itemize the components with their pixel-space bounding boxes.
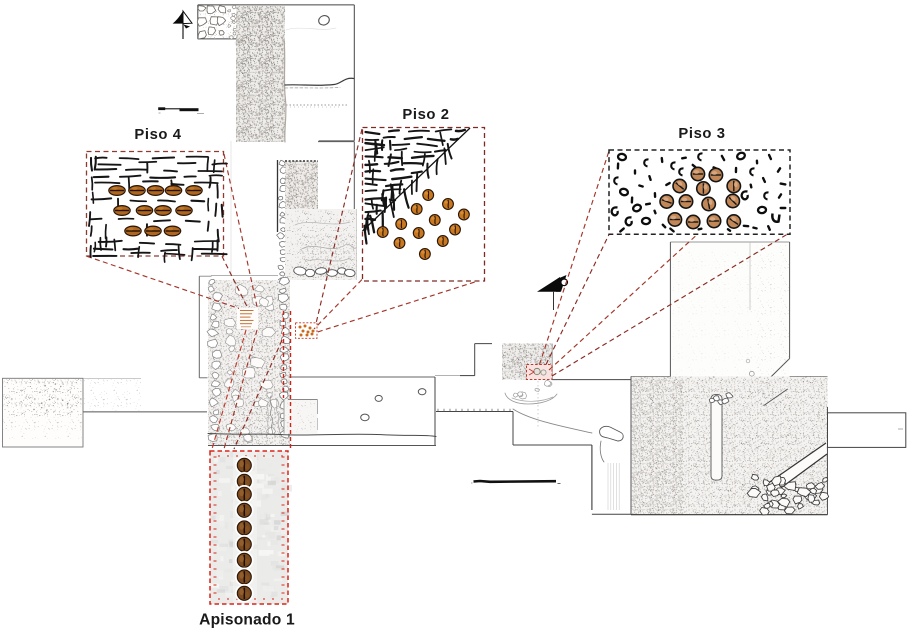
svg-text:Piso 3: Piso 3 (678, 126, 725, 142)
svg-text:Piso 4: Piso 4 (134, 127, 181, 143)
svg-text:Apisonado 1: Apisonado 1 (199, 612, 295, 629)
svg-text:Piso 2: Piso 2 (402, 107, 449, 123)
